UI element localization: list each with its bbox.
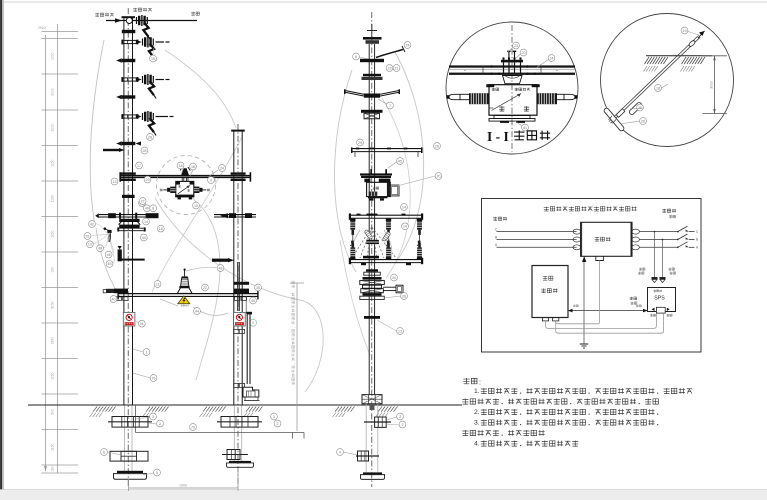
- svg-text:15: 15: [151, 57, 155, 61]
- svg-text:2: 2: [402, 423, 404, 427]
- svg-text:C: C: [495, 227, 498, 231]
- svg-text:3: 3: [273, 415, 275, 419]
- svg-text:48: 48: [98, 246, 102, 250]
- svg-text:28: 28: [148, 135, 152, 139]
- svg-text:45: 45: [398, 159, 402, 163]
- svg-text:40: 40: [112, 297, 116, 301]
- svg-text:5: 5: [156, 471, 158, 475]
- svg-text:B: B: [696, 238, 698, 242]
- svg-text:16: 16: [191, 165, 195, 169]
- svg-text:C: C: [696, 230, 699, 234]
- svg-text:3: 3: [152, 415, 154, 419]
- svg-text:2910: 2910: [38, 26, 46, 30]
- svg-text:19: 19: [683, 29, 687, 33]
- svg-text:45: 45: [108, 262, 112, 266]
- svg-text:45: 45: [251, 299, 255, 303]
- svg-text:5: 5: [252, 321, 254, 325]
- svg-text:24: 24: [406, 43, 410, 47]
- svg-text:23: 23: [514, 44, 518, 48]
- svg-text:1150: 1150: [51, 230, 55, 237]
- svg-text:8: 8: [152, 206, 154, 210]
- svg-text:3: 3: [399, 415, 401, 419]
- svg-text:2010: 2010: [51, 124, 55, 132]
- svg-text:31: 31: [140, 322, 144, 326]
- svg-text:41: 41: [523, 126, 527, 130]
- svg-text:48: 48: [219, 266, 223, 270]
- svg-text:B: B: [495, 235, 497, 239]
- svg-text:42: 42: [90, 222, 94, 226]
- svg-text:28: 28: [435, 144, 439, 148]
- svg-text:20: 20: [392, 276, 396, 280]
- svg-text:22: 22: [203, 286, 207, 290]
- svg-text:150: 150: [51, 466, 55, 472]
- svg-text:13: 13: [398, 329, 402, 333]
- svg-text:13: 13: [88, 243, 92, 247]
- svg-text:25: 25: [85, 234, 89, 238]
- svg-text:14: 14: [403, 225, 407, 229]
- svg-text:6: 6: [355, 55, 357, 59]
- svg-text:A: A: [696, 246, 699, 250]
- svg-text:44: 44: [142, 236, 146, 240]
- svg-text:2000: 2000: [51, 88, 55, 96]
- svg-text::: :: [479, 380, 481, 387]
- svg-text:26: 26: [641, 119, 645, 123]
- svg-text:14: 14: [144, 220, 148, 224]
- svg-text:1950: 1950: [51, 337, 55, 345]
- svg-text:500: 500: [51, 409, 55, 415]
- svg-text:1150: 1150: [51, 443, 55, 450]
- svg-text:28: 28: [143, 149, 147, 153]
- svg-text:4.: 4.: [474, 441, 480, 448]
- svg-text:23: 23: [388, 66, 392, 70]
- svg-text:1150: 1150: [51, 195, 55, 202]
- svg-text:4: 4: [339, 450, 341, 454]
- svg-text:7: 7: [389, 104, 391, 108]
- svg-text:18: 18: [179, 164, 183, 168]
- svg-text:10: 10: [194, 204, 198, 208]
- svg-text:A: A: [495, 243, 498, 247]
- svg-text:2.: 2.: [474, 409, 480, 416]
- svg-text:17: 17: [137, 164, 141, 168]
- svg-text:13: 13: [113, 180, 117, 184]
- svg-text:30: 30: [256, 286, 260, 290]
- svg-text:1150: 1150: [51, 159, 55, 166]
- svg-text:20: 20: [522, 51, 526, 55]
- svg-text:18: 18: [656, 86, 660, 90]
- svg-text:29: 29: [146, 178, 150, 182]
- svg-text:2: 2: [159, 422, 161, 426]
- svg-text:3.: 3.: [474, 420, 480, 427]
- svg-text:2: 2: [277, 422, 279, 426]
- svg-text:21: 21: [156, 282, 160, 286]
- svg-text:6: 6: [103, 450, 105, 454]
- svg-text:46: 46: [107, 253, 111, 257]
- svg-text:21: 21: [395, 66, 399, 70]
- svg-text:40: 40: [145, 206, 149, 210]
- svg-text:26: 26: [402, 294, 406, 298]
- svg-text:150: 150: [51, 267, 55, 273]
- svg-text:44: 44: [195, 309, 199, 313]
- svg-text:24: 24: [550, 56, 554, 60]
- svg-text:1500: 1500: [179, 484, 187, 488]
- svg-text:14: 14: [402, 205, 406, 209]
- svg-text:20: 20: [437, 174, 441, 178]
- svg-text:76: 76: [152, 376, 156, 380]
- svg-text:=: =: [556, 69, 558, 73]
- svg-text:9: 9: [210, 178, 212, 182]
- svg-text:70: 70: [191, 425, 195, 429]
- svg-text:27: 27: [141, 199, 145, 203]
- svg-text:=: =: [464, 69, 466, 73]
- svg-text:SPS: SPS: [654, 296, 665, 302]
- svg-text:25: 25: [638, 106, 642, 110]
- svg-text:1: 1: [146, 350, 148, 354]
- svg-text:3000: 3000: [710, 81, 714, 89]
- svg-text:1.: 1.: [474, 388, 480, 395]
- svg-text:I - I: I - I: [487, 129, 509, 144]
- svg-text:16: 16: [159, 227, 163, 231]
- svg-text:3150: 3150: [51, 301, 55, 309]
- svg-text:1150: 1150: [51, 372, 55, 379]
- svg-text:24: 24: [220, 166, 224, 170]
- svg-text:29: 29: [358, 141, 362, 145]
- svg-text:1000: 1000: [51, 52, 55, 60]
